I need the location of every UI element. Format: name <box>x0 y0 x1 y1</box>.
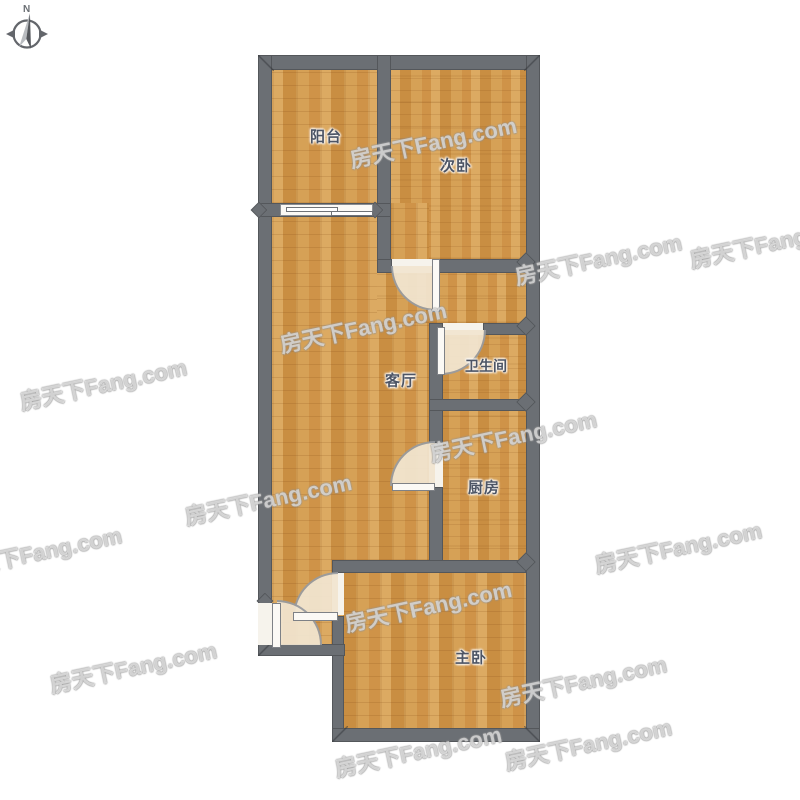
door-leaf-master <box>293 612 338 621</box>
room-label-bedroom2: 次卧 <box>440 155 472 176</box>
watermark: 房天下Fang.com <box>0 518 125 585</box>
wall <box>332 616 344 742</box>
wall <box>377 259 392 273</box>
door-opening-entry <box>258 603 272 645</box>
sliding-window <box>280 204 373 216</box>
wall <box>258 55 540 70</box>
room-label-living-room: 客厅 <box>385 370 417 391</box>
compass-north-label: N <box>23 4 30 15</box>
wall <box>437 259 526 273</box>
floorplan-page: N <box>0 0 800 800</box>
compass-icon: N <box>4 2 50 58</box>
watermark: 房天下Fang.com <box>592 513 765 580</box>
wall <box>332 728 540 742</box>
door-leaf-bedroom2 <box>432 259 440 312</box>
room-label-kitchen: 厨房 <box>468 477 500 498</box>
door-leaf-kitchen <box>392 483 435 491</box>
room-label-bathroom: 卫生间 <box>465 356 507 376</box>
wall <box>332 560 526 573</box>
door-leaf-bathroom <box>437 327 445 375</box>
watermark: 房天下Fang.com <box>687 208 800 275</box>
watermark: 房天下Fang.com <box>47 633 220 700</box>
room-label-balcony: 阳台 <box>310 126 342 147</box>
floor-master-bedroom <box>332 560 526 742</box>
floor-plan <box>258 55 540 742</box>
watermark: 房天下Fang.com <box>17 350 190 417</box>
wall <box>377 55 391 273</box>
room-label-master-bedroom: 主卧 <box>455 647 487 668</box>
door-leaf-entry <box>272 603 281 648</box>
wall <box>258 55 272 603</box>
window-pane <box>331 211 373 216</box>
wall <box>429 399 526 411</box>
